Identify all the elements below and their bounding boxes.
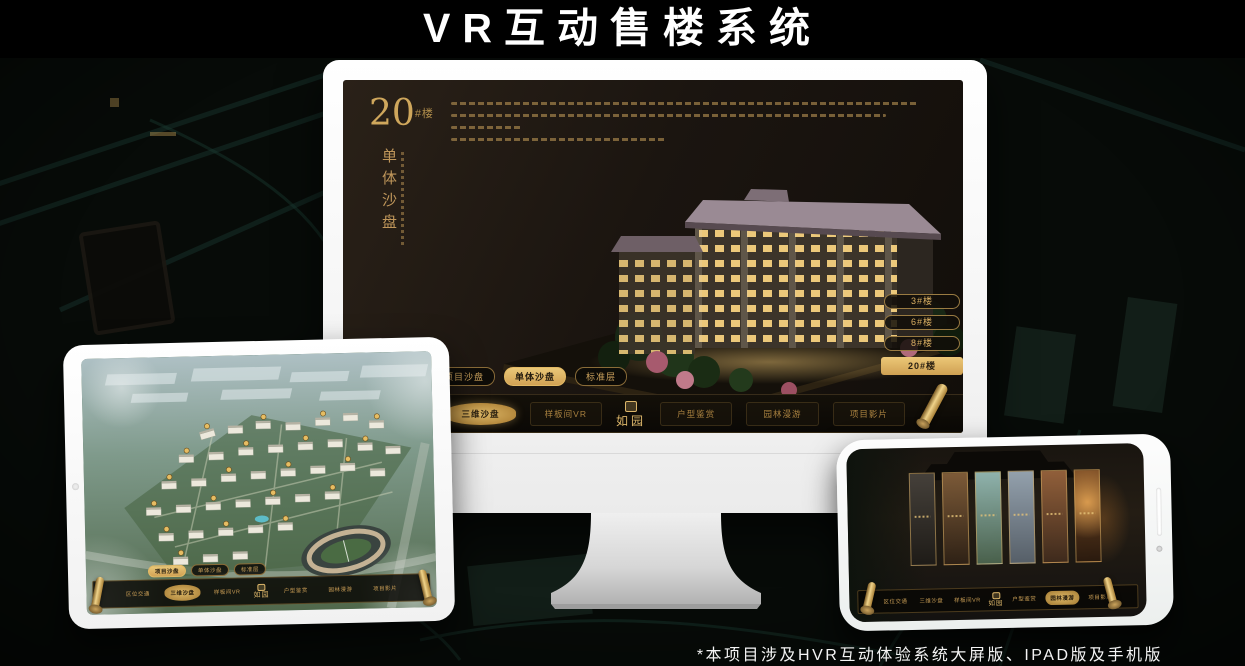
tablet-screen: 项目沙盘 单体沙盘 标准层 区位交通 三维沙盘 样板间VR 如园 户型鉴赏 园林… bbox=[81, 351, 437, 615]
nav-item-floorplans[interactable]: 户型鉴赏 bbox=[660, 402, 732, 426]
seal-icon bbox=[625, 401, 637, 412]
tablet-camera-icon bbox=[72, 483, 79, 490]
gallery-item-building[interactable] bbox=[1008, 470, 1036, 564]
tablet-nav-item-floorplans[interactable]: 户型鉴赏 bbox=[277, 586, 314, 595]
building-subtitle: 单体沙盘 bbox=[379, 148, 400, 236]
phone-nav-item-showroom-vr[interactable]: 样板间VR bbox=[952, 595, 982, 604]
building-button-8[interactable]: 8#楼 bbox=[884, 336, 960, 351]
tablet-nav-item-showroom-vr[interactable]: 样板间VR bbox=[209, 587, 246, 596]
gallery-item-autumn[interactable] bbox=[1041, 470, 1069, 564]
nav-item-project-film[interactable]: 项目影片 bbox=[833, 402, 905, 426]
building-button-20[interactable]: 20#楼 bbox=[881, 357, 963, 375]
tablet-nav-item-location[interactable]: 区位交通 bbox=[119, 589, 156, 598]
phone-brand-logo: 如园 bbox=[988, 592, 1003, 607]
footnote: *本项目涉及HVR互动体验系统大屏版、IPAD版及手机版 bbox=[697, 641, 1163, 665]
subtitle-english-caption bbox=[401, 152, 404, 248]
gallery-item-shelf[interactable] bbox=[1074, 469, 1102, 563]
gallery-item-interior-gray[interactable] bbox=[909, 472, 937, 566]
tablet-tab-project-sandtable[interactable]: 项目沙盘 bbox=[148, 565, 186, 578]
building-selector: 3#楼 6#楼 8#楼 20#楼 bbox=[881, 294, 963, 381]
desktop-tabs: 项目沙盘 单体沙盘 标准层 bbox=[433, 367, 627, 386]
seal-icon bbox=[257, 583, 265, 590]
building-heading: 20#楼 bbox=[369, 96, 434, 132]
phone-nav-item-floorplans[interactable]: 户型鉴赏 bbox=[1009, 594, 1039, 603]
building-button-6[interactable]: 6#楼 bbox=[884, 315, 960, 330]
tablet-brand-logo-text: 如园 bbox=[253, 591, 269, 598]
gallery-item-garden[interactable] bbox=[975, 471, 1003, 565]
gallery-item-interior-warm[interactable] bbox=[942, 472, 970, 566]
tab-standard-floor[interactable]: 标准层 bbox=[575, 367, 627, 386]
phone-nav-item-garden-tour[interactable]: 园林漫游 bbox=[1045, 590, 1079, 605]
intro-text-lines bbox=[451, 102, 919, 150]
tablet-tab-single-sandtable[interactable]: 单体沙盘 bbox=[191, 564, 229, 577]
phone-navbar: 区位交通 三维沙盘 样板间VR 如园 户型鉴赏 园林漫游 项目影片 bbox=[857, 584, 1138, 614]
phone-device: 区位交通 三维沙盘 样板间VR 如园 户型鉴赏 园林漫游 项目影片 bbox=[836, 434, 1174, 632]
brand-logo: 如园 bbox=[616, 401, 646, 427]
phone-camera-icon bbox=[1156, 546, 1162, 552]
tablet-device: 项目沙盘 单体沙盘 标准层 区位交通 三维沙盘 样板间VR 如园 户型鉴赏 园林… bbox=[63, 337, 455, 630]
tablet-nav-item-garden-tour[interactable]: 园林漫游 bbox=[322, 585, 359, 594]
phone-brand-logo-text: 如园 bbox=[988, 600, 1003, 607]
tablet-nav-item-project-film[interactable]: 项目影片 bbox=[367, 584, 404, 593]
building-number-suffix: #楼 bbox=[415, 108, 434, 120]
nav-item-showroom-vr[interactable]: 样板间VR bbox=[530, 402, 602, 426]
brand-logo-text: 如园 bbox=[616, 415, 646, 427]
building-button-3[interactable]: 3#楼 bbox=[884, 294, 960, 309]
phone-speaker-slot bbox=[1156, 488, 1162, 536]
tablet-brand-logo: 如园 bbox=[253, 583, 269, 598]
page-title: VR互动售楼系统 bbox=[0, 0, 1245, 58]
phone-nav-item-location[interactable]: 区位交通 bbox=[880, 597, 910, 606]
building-number: 20 bbox=[369, 93, 415, 134]
tablet-tab-standard-floor[interactable]: 标准层 bbox=[234, 563, 266, 576]
nav-item-garden-tour[interactable]: 园林漫游 bbox=[746, 402, 818, 426]
stage: VR互动售楼系统 20#楼 单体沙盘 bbox=[0, 0, 1245, 666]
phone-nav-item-3d-sandtable[interactable]: 三维沙盘 bbox=[916, 596, 946, 605]
tab-single-sandtable[interactable]: 单体沙盘 bbox=[504, 367, 566, 386]
tablet-nav-item-3d-sandtable[interactable]: 三维沙盘 bbox=[164, 584, 201, 601]
seal-icon bbox=[992, 592, 1000, 599]
phone-screen: 区位交通 三维沙盘 样板间VR 如园 户型鉴赏 园林漫游 项目影片 bbox=[846, 443, 1147, 622]
panorama-gallery bbox=[909, 469, 1102, 566]
nav-item-3d-sandtable[interactable]: 三维沙盘 bbox=[445, 403, 515, 425]
